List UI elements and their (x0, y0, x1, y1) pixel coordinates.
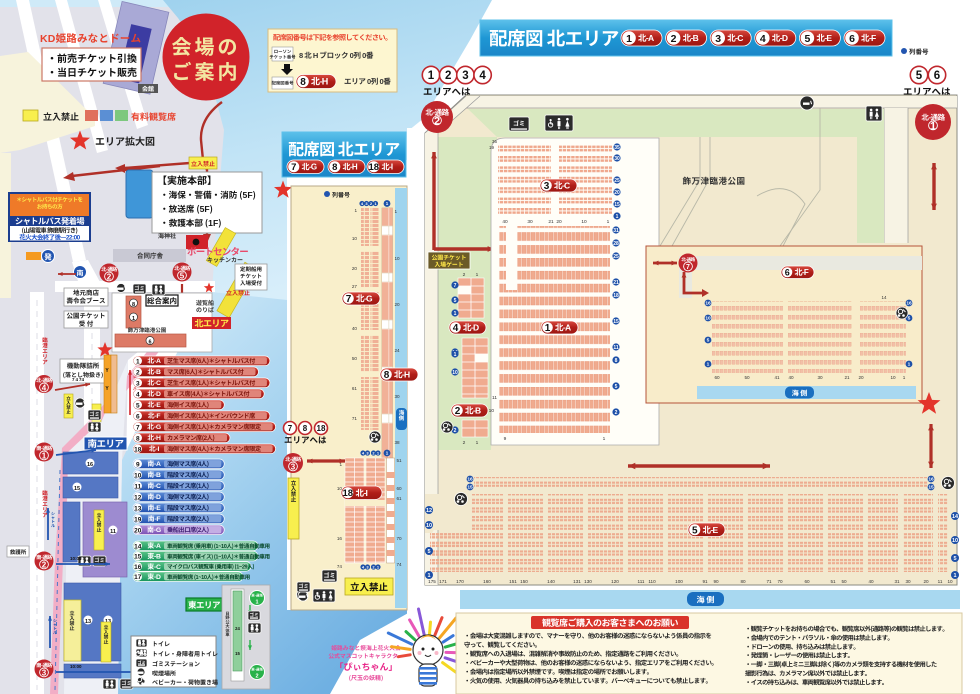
svg-text:・前売チケット引換: ・前売チケット引換 (47, 50, 137, 65)
svg-text:止: 止 (291, 496, 297, 504)
svg-text:17: 17 (134, 571, 142, 581)
svg-text:2: 2 (463, 271, 466, 278)
svg-text:北-D: 北-D (147, 388, 161, 398)
svg-text:18: 18 (613, 292, 619, 299)
svg-text:61: 61 (397, 496, 403, 502)
svg-text:7: 7 (686, 262, 690, 272)
svg-text:4: 4 (479, 67, 486, 83)
svg-text:140: 140 (547, 579, 555, 585)
svg-text:5: 5 (707, 337, 710, 344)
svg-text:21: 21 (548, 218, 554, 225)
svg-text:北エリア: 北エリア (194, 317, 229, 330)
svg-text:16: 16 (87, 460, 93, 468)
svg-text:北-B: 北-B (465, 405, 481, 417)
svg-text:「ぴぃちゃん」: 「ぴぃちゃん」 (334, 660, 397, 673)
svg-text:19: 19 (489, 145, 495, 151)
svg-text:止: 止 (104, 638, 109, 645)
svg-text:側: 側 (399, 414, 405, 422)
svg-text:階段マス席(2人): 階段マス席(2人) (167, 514, 209, 523)
svg-text:・火気の使用、火気器具の持ち込みを禁止しています。バーベキュ: ・火気の使用、火気器具の持ち込みを禁止しています。バーベキューについても禁止しま… (464, 676, 711, 685)
svg-text:170: 170 (456, 579, 464, 585)
svg-text:11: 11 (938, 579, 943, 585)
svg-text:南エリア: 南エリア (87, 436, 124, 450)
svg-text:14: 14 (952, 512, 959, 520)
svg-text:階段イス席(1人): 階段イス席(1人) (167, 481, 209, 490)
svg-text:175: 175 (428, 579, 436, 585)
svg-text:30: 30 (905, 579, 911, 585)
svg-text:50: 50 (352, 356, 358, 362)
svg-text:14: 14 (881, 295, 887, 301)
svg-text:16: 16 (337, 536, 343, 542)
svg-text:東-D: 東-D (147, 571, 161, 581)
svg-text:8: 8 (132, 300, 135, 308)
svg-text:12: 12 (426, 506, 432, 514)
svg-text:1: 1 (428, 67, 435, 83)
svg-text:16: 16 (134, 561, 142, 571)
svg-text:20: 20 (923, 579, 929, 585)
svg-text:2: 2 (455, 402, 461, 417)
svg-text:31: 31 (894, 579, 900, 585)
svg-text:11: 11 (492, 394, 497, 401)
svg-text:ご案内: ご案内 (172, 56, 241, 85)
svg-text:ゴミ: ゴミ (298, 583, 308, 590)
svg-text:160: 160 (483, 579, 491, 585)
svg-text:花火大会終了後—22:00: 花火大会終了後—22:00 (19, 233, 80, 242)
svg-text:6: 6 (148, 337, 151, 345)
svg-text:1: 1 (607, 218, 610, 225)
svg-text:合同庁舎: 合同庁舎 (137, 250, 164, 260)
svg-text:南-B: 南-B (147, 469, 161, 479)
svg-text:6: 6 (934, 67, 940, 83)
svg-text:・ベビーカーや大型荷物は、他のお客様の迷惑にならないよう、指: ・ベビーカーや大型荷物は、他のお客様の迷惑にならないよう、指定エリアをご利用くだ… (464, 658, 717, 667)
svg-text:撮影行為は、カメラマン席以外では禁止します。: 撮影行為は、カメラマン席以外では禁止します。 (745, 669, 870, 678)
svg-text:100: 100 (675, 579, 683, 585)
svg-text:北-H: 北-H (343, 162, 358, 173)
svg-text:10: 10 (395, 256, 401, 262)
svg-text:40: 40 (788, 375, 794, 381)
svg-text:20: 20 (614, 189, 620, 196)
svg-text:2: 2 (42, 559, 47, 570)
svg-text:・ドローンの使用、持ち込みは禁止します。: ・ドローンの使用、持ち込みは禁止します。 (745, 642, 859, 651)
svg-text:・イスの持ち込みは、車両観覧席以外では禁止します。: ・イスの持ち込みは、車両観覧席以外では禁止します。 (745, 677, 887, 686)
svg-text:6: 6 (785, 265, 790, 278)
svg-text:南-D: 南-D (147, 491, 161, 501)
svg-text:階段マス席(4人): 階段マス席(4人) (167, 470, 209, 479)
svg-text:海 側: 海 側 (792, 389, 808, 399)
svg-text:北-F: 北-F (148, 410, 161, 420)
svg-text:2: 2 (136, 366, 140, 376)
svg-text:1: 1 (454, 310, 457, 317)
svg-text:公式マスコットキャラクター: 公式マスコットキャラクター (328, 651, 404, 660)
svg-text:発: 発 (44, 252, 52, 263)
svg-text:9: 9 (136, 458, 140, 468)
svg-text:北-B: 北-B (683, 32, 699, 44)
svg-text:壽令会ブース: 壽令会ブース (67, 295, 106, 305)
svg-text:(尺玉の妖精): (尺玉の妖精) (349, 673, 384, 682)
svg-text:18: 18 (368, 159, 379, 173)
svg-text:50: 50 (744, 375, 750, 381)
svg-text:海側マス席(4人): 海側マス席(4人) (167, 459, 209, 468)
svg-text:2: 2 (463, 439, 466, 446)
svg-text:60: 60 (804, 579, 810, 585)
svg-text:南-C: 南-C (147, 480, 161, 490)
svg-text:1: 1 (427, 571, 430, 579)
svg-text:50: 50 (841, 579, 847, 585)
svg-text:南-F: 南-F (148, 513, 161, 523)
svg-text:7 4 74: 7 4 74 (72, 377, 85, 383)
svg-text:北-G: 北-G (356, 293, 373, 305)
svg-text:10: 10 (952, 536, 958, 544)
svg-text:飾万津臨港公園: 飾万津臨港公園 (682, 175, 745, 187)
svg-text:受 付: 受 付 (79, 318, 94, 328)
svg-text:3: 3 (42, 667, 47, 678)
svg-text:車両観覧席 (1~10人)＊普通自動車用: 車両観覧席 (1~10人)＊普通自動車用 (167, 573, 251, 581)
svg-text:150: 150 (520, 579, 528, 585)
svg-text:飾万津臨港公園: 飾万津臨港公園 (128, 326, 167, 334)
svg-text:24: 24 (395, 348, 401, 354)
svg-text:・会場内は指定場所以外禁煙です。喫煙は指定の場所でお願いしま: ・会場内は指定場所以外禁煙です。喫煙は指定の場所でお願いします。 (464, 667, 653, 676)
svg-text:1: 1 (930, 117, 936, 133)
svg-text:10: 10 (947, 579, 953, 585)
svg-text:2: 2 (454, 427, 457, 434)
svg-text:27: 27 (352, 284, 358, 290)
svg-text:キッチンカー: キッチンカー (207, 255, 243, 264)
svg-text:18: 18 (317, 423, 326, 434)
svg-text:ア: ア (42, 358, 48, 366)
svg-text:・救護本部 (1F): ・救護本部 (1F) (160, 217, 221, 229)
svg-text:ゴミ: ゴミ (134, 285, 144, 292)
svg-text:8: 8 (615, 357, 618, 364)
svg-text:74: 74 (397, 562, 403, 568)
svg-text:チケット番号: チケット番号 (269, 55, 296, 61)
svg-text:北-H: 北-H (311, 75, 328, 88)
svg-text:5: 5 (916, 67, 923, 83)
svg-text:北-I: 北-I (382, 162, 393, 173)
svg-text:1: 1 (132, 314, 135, 322)
svg-text:10: 10 (337, 486, 343, 492)
svg-text:1: 1 (626, 31, 632, 46)
svg-text:5: 5 (180, 270, 185, 281)
svg-text:15: 15 (235, 651, 240, 657)
svg-text:1: 1 (476, 271, 479, 278)
svg-text:・会場内でのテント・パラソル・傘の使用は禁止します。: ・会場内でのテント・パラソル・傘の使用は禁止します。 (745, 633, 893, 642)
svg-text:のりば: のりば (196, 305, 214, 314)
svg-text:1: 1 (255, 598, 258, 606)
svg-text:北-A: 北-A (555, 322, 571, 334)
svg-text:7: 7 (288, 423, 293, 434)
svg-text:観覧席ご購入のお客さまへのお願い: 観覧席ご購入のお客さまへのお願い (542, 616, 679, 629)
svg-text:74: 74 (337, 564, 343, 570)
svg-text:10: 10 (890, 375, 896, 381)
svg-text:21: 21 (613, 279, 619, 286)
svg-text:8: 8 (300, 73, 306, 88)
svg-text:北-C: 北-C (554, 180, 570, 192)
svg-text:7: 7 (454, 282, 457, 289)
svg-text:28: 28 (613, 240, 619, 247)
svg-text:41: 41 (774, 375, 780, 381)
svg-text:北-I: 北-I (149, 443, 160, 453)
svg-text:ル: ル (51, 523, 55, 529)
svg-text:・放送席 (5F): ・放送席 (5F) (160, 203, 213, 215)
svg-text:ゴミ: ゴミ (89, 411, 99, 418)
svg-text:40: 40 (352, 326, 358, 332)
svg-text:30: 30 (614, 155, 620, 162)
svg-text:配席図番号: 配席図番号 (272, 81, 295, 87)
svg-text:20: 20 (395, 302, 401, 308)
svg-text:15: 15 (614, 201, 620, 208)
svg-text:131: 131 (573, 579, 581, 585)
svg-text:立入禁止: 立入禁止 (191, 159, 215, 168)
svg-text:・海保・警備・消防 (5F): ・海保・警備・消防 (5F) (160, 189, 256, 201)
svg-text:ゴミ: ゴミ (323, 570, 335, 579)
svg-text:70: 70 (397, 536, 403, 542)
svg-text:1: 1 (908, 361, 911, 368)
svg-text:40: 40 (868, 579, 874, 585)
svg-text:5: 5 (454, 297, 457, 304)
svg-text:東-A: 東-A (147, 540, 161, 550)
svg-text:3: 3 (544, 177, 550, 192)
svg-text:【実施本部】: 【実施本部】 (157, 172, 217, 187)
svg-text:1: 1 (616, 213, 619, 220)
svg-text:21: 21 (844, 375, 850, 381)
svg-text:80: 80 (740, 579, 746, 585)
svg-text:ゴミ: ゴミ (513, 119, 525, 128)
svg-text:・発煙筒・レーザーの使用は禁止します。: ・発煙筒・レーザーの使用は禁止します。 (745, 651, 853, 660)
svg-text:有料観覧席: 有料観覧席 (131, 110, 176, 123)
svg-text:7: 7 (291, 159, 296, 173)
svg-text:15: 15 (74, 484, 80, 492)
svg-text:カメラマン席(2人): カメラマン席(2人) (167, 433, 214, 442)
svg-text:4: 4 (453, 319, 459, 334)
svg-text:入場ゲート: 入場ゲート (435, 260, 464, 269)
svg-text:20: 20 (556, 218, 562, 225)
svg-text:北-C: 北-C (147, 377, 161, 387)
svg-text:10:00: 10:00 (70, 664, 82, 670)
svg-text:10: 10 (426, 521, 432, 529)
svg-text:10: 10 (581, 218, 587, 225)
svg-text:11: 11 (613, 344, 619, 351)
svg-text:北-B: 北-B (147, 366, 161, 376)
svg-text:5: 5 (136, 399, 140, 409)
svg-text:止: 止 (97, 526, 102, 533)
svg-text:車: 車 (225, 632, 229, 638)
svg-text:2: 2 (434, 112, 440, 128)
svg-text:海側イス席(1人): 海側イス席(1人) (167, 400, 209, 409)
svg-text:91: 91 (702, 579, 708, 585)
svg-text:2: 2 (615, 409, 618, 416)
svg-text:止: 止 (69, 625, 74, 632)
svg-text:1: 1 (603, 435, 606, 442)
svg-text:10: 10 (705, 315, 711, 322)
svg-text:マス席(6人)＊シャトルバス付: マス席(6人)＊シャトルバス付 (167, 367, 244, 376)
svg-text:階段マス席(2人): 階段マス席(2人) (167, 503, 209, 512)
svg-text:止: 止 (66, 410, 71, 416)
svg-text:東-B: 東-B (147, 551, 161, 561)
svg-text:2: 2 (671, 31, 677, 46)
svg-text:18: 18 (342, 485, 353, 499)
svg-text:2: 2 (107, 271, 112, 282)
svg-text:10: 10 (489, 407, 495, 414)
svg-text:配席図 北エリア: 配席図 北エリア (489, 25, 619, 51)
svg-text:19: 19 (134, 513, 142, 523)
svg-text:芝生マス席(6人)＊シャトルバス付: 芝生マス席(6人)＊シャトルバス付 (167, 356, 255, 365)
svg-text:5: 5 (692, 521, 698, 536)
svg-text:10: 10 (352, 236, 358, 242)
svg-text:守って、観覧してください。: 守って、観覧してください。 (464, 640, 541, 649)
svg-text:1: 1 (953, 571, 956, 579)
svg-text:1: 1 (707, 361, 710, 368)
svg-text:20: 20 (134, 524, 142, 534)
svg-text:トイレ: トイレ (152, 639, 170, 648)
svg-text:70: 70 (777, 579, 783, 585)
svg-text:5: 5 (908, 315, 911, 322)
svg-text:・観覧席への入退場は、混雑解消や事故防止のため、指定通路をご: ・観覧席への入退場は、混雑解消や事故防止のため、指定通路をご利用ください。 (464, 649, 682, 658)
svg-text:8 北 H ブロック 0列 0番: 8 北 H ブロック 0列 0番 (299, 50, 374, 61)
svg-text:11: 11 (134, 480, 141, 490)
svg-text:25: 25 (614, 177, 620, 184)
svg-text:・当日チケット販売: ・当日チケット販売 (47, 64, 137, 79)
svg-text:北-C: 北-C (727, 32, 743, 44)
svg-text:8: 8 (384, 366, 390, 381)
svg-text:7: 7 (346, 290, 352, 305)
svg-text:15: 15 (613, 318, 619, 325)
svg-text:北-A: 北-A (147, 355, 161, 365)
svg-text:1: 1 (354, 208, 357, 214)
svg-text:20: 20 (858, 375, 864, 381)
svg-text:8: 8 (303, 423, 308, 434)
svg-text:5: 5 (953, 554, 956, 562)
svg-text:31: 31 (613, 227, 619, 234)
svg-text:3: 3 (291, 461, 296, 472)
svg-text:13: 13 (134, 502, 142, 512)
svg-text:40: 40 (502, 218, 508, 225)
svg-text:海側マス席(2人): 海側マス席(2人) (167, 492, 209, 501)
svg-text:1: 1 (395, 209, 398, 215)
svg-text:3: 3 (462, 67, 468, 83)
svg-text:トイレ・身障者用トイレ: トイレ・身障者用トイレ (152, 649, 218, 658)
svg-text:東エリア: 東エリア (188, 599, 221, 611)
svg-text:51: 51 (830, 579, 836, 585)
svg-text:海側イス席(1人)＊インバウンド席: 海側イス席(1人)＊インバウンド席 (167, 411, 255, 420)
svg-text:エリア拡大図: エリア拡大図 (95, 133, 155, 148)
svg-text:8: 8 (136, 432, 140, 442)
svg-text:90: 90 (713, 579, 719, 585)
svg-text:16: 16 (928, 476, 934, 483)
svg-text:車両観覧席 (乗用車) (1~10人)＊普通自動車用: 車両観覧席 (乗用車) (1~10人)＊普通自動車用 (167, 542, 271, 550)
svg-text:芝生イス席(1人)＊シャトルバス付: 芝生イス席(1人)＊シャトルバス付 (167, 378, 255, 387)
svg-text:喫煙場所: 喫煙場所 (152, 669, 176, 678)
svg-text:8: 8 (332, 159, 337, 173)
svg-text:1: 1 (42, 450, 47, 461)
svg-text:海側マス席(4人)＊カメラマン席限定: 海側マス席(4人)＊カメラマン席限定 (167, 444, 261, 453)
svg-text:30: 30 (395, 394, 401, 400)
svg-text:北-E: 北-E (703, 524, 719, 536)
svg-text:15: 15 (928, 484, 934, 491)
svg-text:111: 111 (638, 579, 645, 585)
svg-text:15: 15 (467, 484, 473, 491)
svg-text:KD姫路みなとドーム: KD姫路みなとドーム (40, 31, 141, 46)
svg-text:マイクロバス観覧車 (乗用車) (1~29人): マイクロバス観覧車 (乗用車) (1~29人) (167, 563, 254, 571)
svg-text:71: 71 (352, 416, 358, 422)
svg-text:北-E: 北-E (816, 32, 832, 44)
svg-text:乗船出口席(2人): 乗船出口席(2人) (167, 525, 209, 534)
svg-text:エリア 0列 0番: エリア 0列 0番 (344, 76, 391, 87)
svg-text:1: 1 (454, 351, 457, 358)
svg-text:南: 南 (77, 269, 84, 279)
svg-text:10: 10 (452, 369, 458, 376)
svg-text:東-C: 東-C (147, 561, 161, 571)
svg-text:北-E: 北-E (148, 399, 162, 409)
svg-text:18: 18 (134, 443, 142, 453)
svg-text:南-E: 南-E (148, 502, 162, 512)
svg-text:配席図番号は下記を参照してください。: 配席図番号は下記を参照してください。 (273, 33, 392, 43)
svg-text:救護所: 救護所 (10, 548, 27, 556)
svg-text:南-G: 南-G (147, 524, 161, 534)
svg-text:130: 130 (584, 579, 592, 585)
svg-text:北-I: 北-I (356, 487, 368, 499)
svg-text:列番号: 列番号 (909, 46, 929, 56)
svg-text:30: 30 (527, 218, 533, 225)
svg-text:北-G: 北-G (147, 421, 161, 431)
svg-text:7: 7 (136, 421, 140, 431)
svg-text:71: 71 (766, 579, 772, 585)
svg-text:5: 5 (804, 31, 810, 46)
svg-text:ル: ル (53, 630, 57, 636)
svg-text:入場受付: 入場受付 (240, 279, 263, 287)
svg-text:10: 10 (134, 469, 142, 479)
svg-text:北-D: 北-D (463, 322, 479, 334)
svg-text:列番号: 列番号 (332, 190, 350, 199)
svg-text:・観覧チケットをお持ちの場合でも、観覧席以外(通路等)の観覧: ・観覧チケットをお持ちの場合でも、観覧席以外(通路等)の観覧は禁止します。 (745, 624, 948, 633)
svg-text:車イス席(4人)＊シャトルバス付: 車イス席(4人)＊シャトルバス付 (167, 389, 249, 398)
svg-text:南-A: 南-A (147, 458, 161, 468)
svg-text:お持ちの方: お持ちの方 (37, 203, 63, 211)
svg-text:3: 3 (136, 377, 140, 387)
svg-text:北-G: 北-G (302, 162, 317, 173)
svg-text:1: 1 (476, 439, 479, 446)
svg-text:151: 151 (509, 579, 517, 585)
svg-text:北-F: 北-F (861, 32, 876, 44)
svg-text:北-F: 北-F (795, 267, 809, 278)
svg-text:25: 25 (613, 253, 619, 260)
svg-text:9: 9 (504, 435, 507, 442)
svg-text:2: 2 (255, 672, 258, 680)
svg-text:3: 3 (715, 31, 721, 46)
svg-text:16: 16 (467, 476, 473, 483)
svg-text:海側イス席(1人)＊カメラマン席限定: 海側イス席(1人)＊カメラマン席限定 (167, 422, 261, 431)
svg-text:35: 35 (614, 144, 620, 151)
svg-text:5: 5 (427, 547, 430, 555)
svg-text:1: 1 (136, 355, 140, 365)
svg-text:10:00: 10:00 (70, 556, 82, 562)
svg-text:38: 38 (395, 440, 401, 446)
svg-text:ゴミ: ゴミ (121, 680, 131, 687)
svg-text:車両観覧席 (車イス) (1~10人)＊普通自動車用: 車両観覧席 (車イス) (1~10人)＊普通自動車用 (167, 552, 271, 560)
svg-text:16: 16 (906, 300, 912, 307)
svg-text:配席図 北エリア: 配席図 北エリア (288, 136, 400, 160)
svg-text:ベビーカー・荷物置き場: ベビーカー・荷物置き場 (152, 678, 218, 687)
svg-text:51: 51 (397, 458, 403, 464)
svg-text:総合案内: 総合案内 (147, 296, 177, 307)
svg-text:北-A: 北-A (638, 32, 654, 44)
svg-text:61: 61 (352, 386, 358, 392)
svg-text:24: 24 (235, 626, 240, 632)
svg-text:14: 14 (134, 540, 142, 550)
svg-text:13: 13 (85, 617, 91, 625)
svg-text:機動隊詰所: 機動隊詰所 (67, 360, 100, 370)
svg-text:北-H: 北-H (147, 432, 161, 442)
svg-text:北-D: 北-D (772, 32, 788, 44)
